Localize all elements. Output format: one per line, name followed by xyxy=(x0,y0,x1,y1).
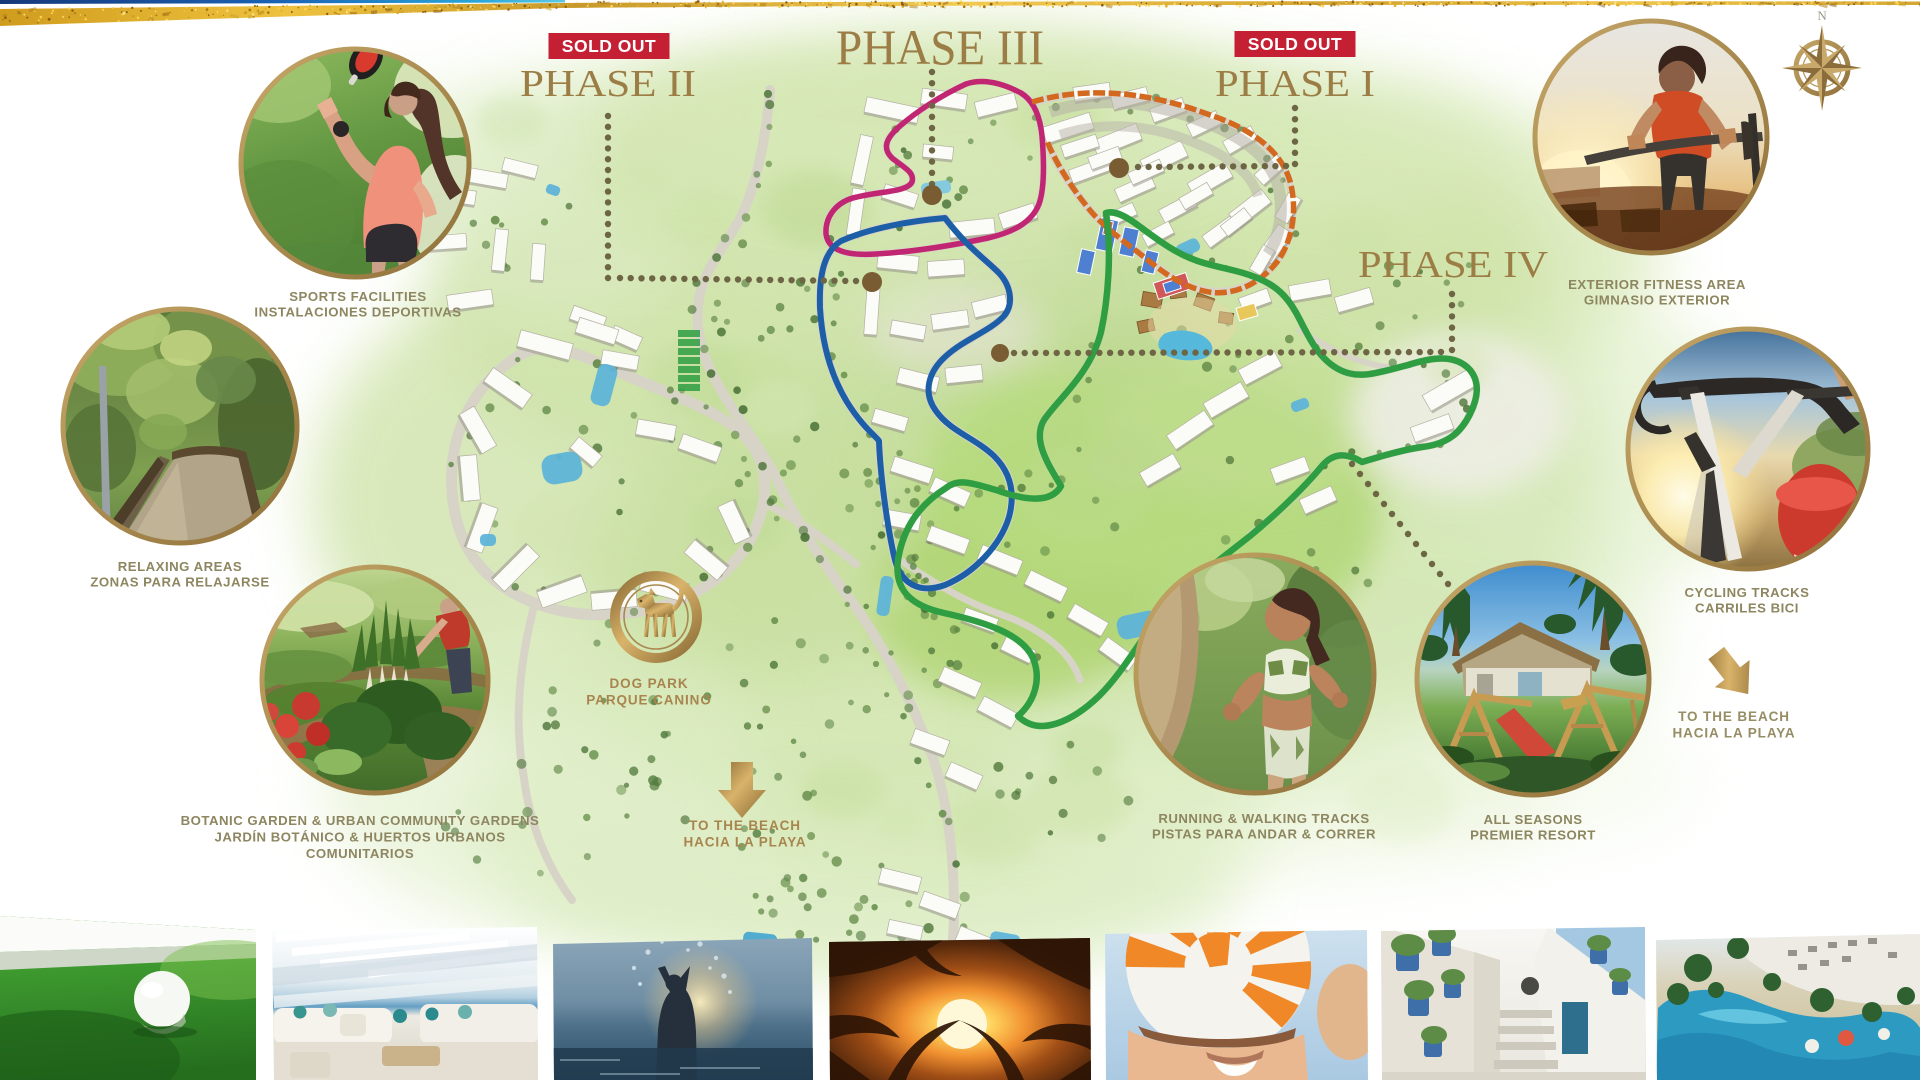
svg-text:ZONAS PARA RELAJARSE: ZONAS PARA RELAJARSE xyxy=(90,575,269,590)
svg-text:JARDÍN BOTÁNICO & HUERTOS URBA: JARDÍN BOTÁNICO & HUERTOS URBANOS xyxy=(214,830,505,845)
svg-text:PHASE I: PHASE I xyxy=(1215,63,1375,105)
svg-text:RELAXING AREAS: RELAXING AREAS xyxy=(118,559,242,574)
svg-text:TO THE BEACH: TO THE BEACH xyxy=(689,818,801,833)
svg-text:EXTERIOR FITNESS AREA: EXTERIOR FITNESS AREA xyxy=(1568,277,1746,292)
svg-text:PARQUE CANINO: PARQUE CANINO xyxy=(586,693,711,708)
svg-text:SOLD OUT: SOLD OUT xyxy=(562,36,656,56)
svg-text:TO THE BEACH: TO THE BEACH xyxy=(1678,709,1790,724)
svg-text:PREMIER RESORT: PREMIER RESORT xyxy=(1470,828,1596,843)
svg-text:CYCLING TRACKS: CYCLING TRACKS xyxy=(1685,585,1810,600)
svg-text:HACIA LA PLAYA: HACIA LA PLAYA xyxy=(683,835,806,850)
svg-text:PHASE II: PHASE II xyxy=(520,63,696,105)
svg-text:INSTALACIONES DEPORTIVAS: INSTALACIONES DEPORTIVAS xyxy=(254,305,461,320)
svg-text:PISTAS PARA ANDAR & CORRER: PISTAS PARA ANDAR & CORRER xyxy=(1152,827,1376,842)
svg-text:BOTANIC GARDEN & URBAN COMMUNI: BOTANIC GARDEN & URBAN COMMUNITY GARDENS xyxy=(181,813,540,828)
svg-text:RUNNING & WALKING TRACKS: RUNNING & WALKING TRACKS xyxy=(1158,811,1369,826)
svg-text:SOLD OUT: SOLD OUT xyxy=(1248,34,1342,54)
svg-text:DOG PARK: DOG PARK xyxy=(610,676,689,691)
svg-text:SPORTS FACILITIES: SPORTS FACILITIES xyxy=(289,289,426,304)
svg-text:PHASE III: PHASE III xyxy=(836,19,1044,75)
svg-text:GIMNASIO EXTERIOR: GIMNASIO EXTERIOR xyxy=(1584,293,1730,308)
svg-text:CARRILES BICI: CARRILES BICI xyxy=(1695,601,1799,616)
svg-text:HACIA LA PLAYA: HACIA LA PLAYA xyxy=(1672,726,1795,741)
svg-text:PHASE IV: PHASE IV xyxy=(1358,244,1549,286)
svg-text:COMUNITARIOS: COMUNITARIOS xyxy=(306,846,414,861)
svg-text:N: N xyxy=(1817,8,1827,23)
svg-text:ALL SEASONS: ALL SEASONS xyxy=(1483,812,1582,827)
